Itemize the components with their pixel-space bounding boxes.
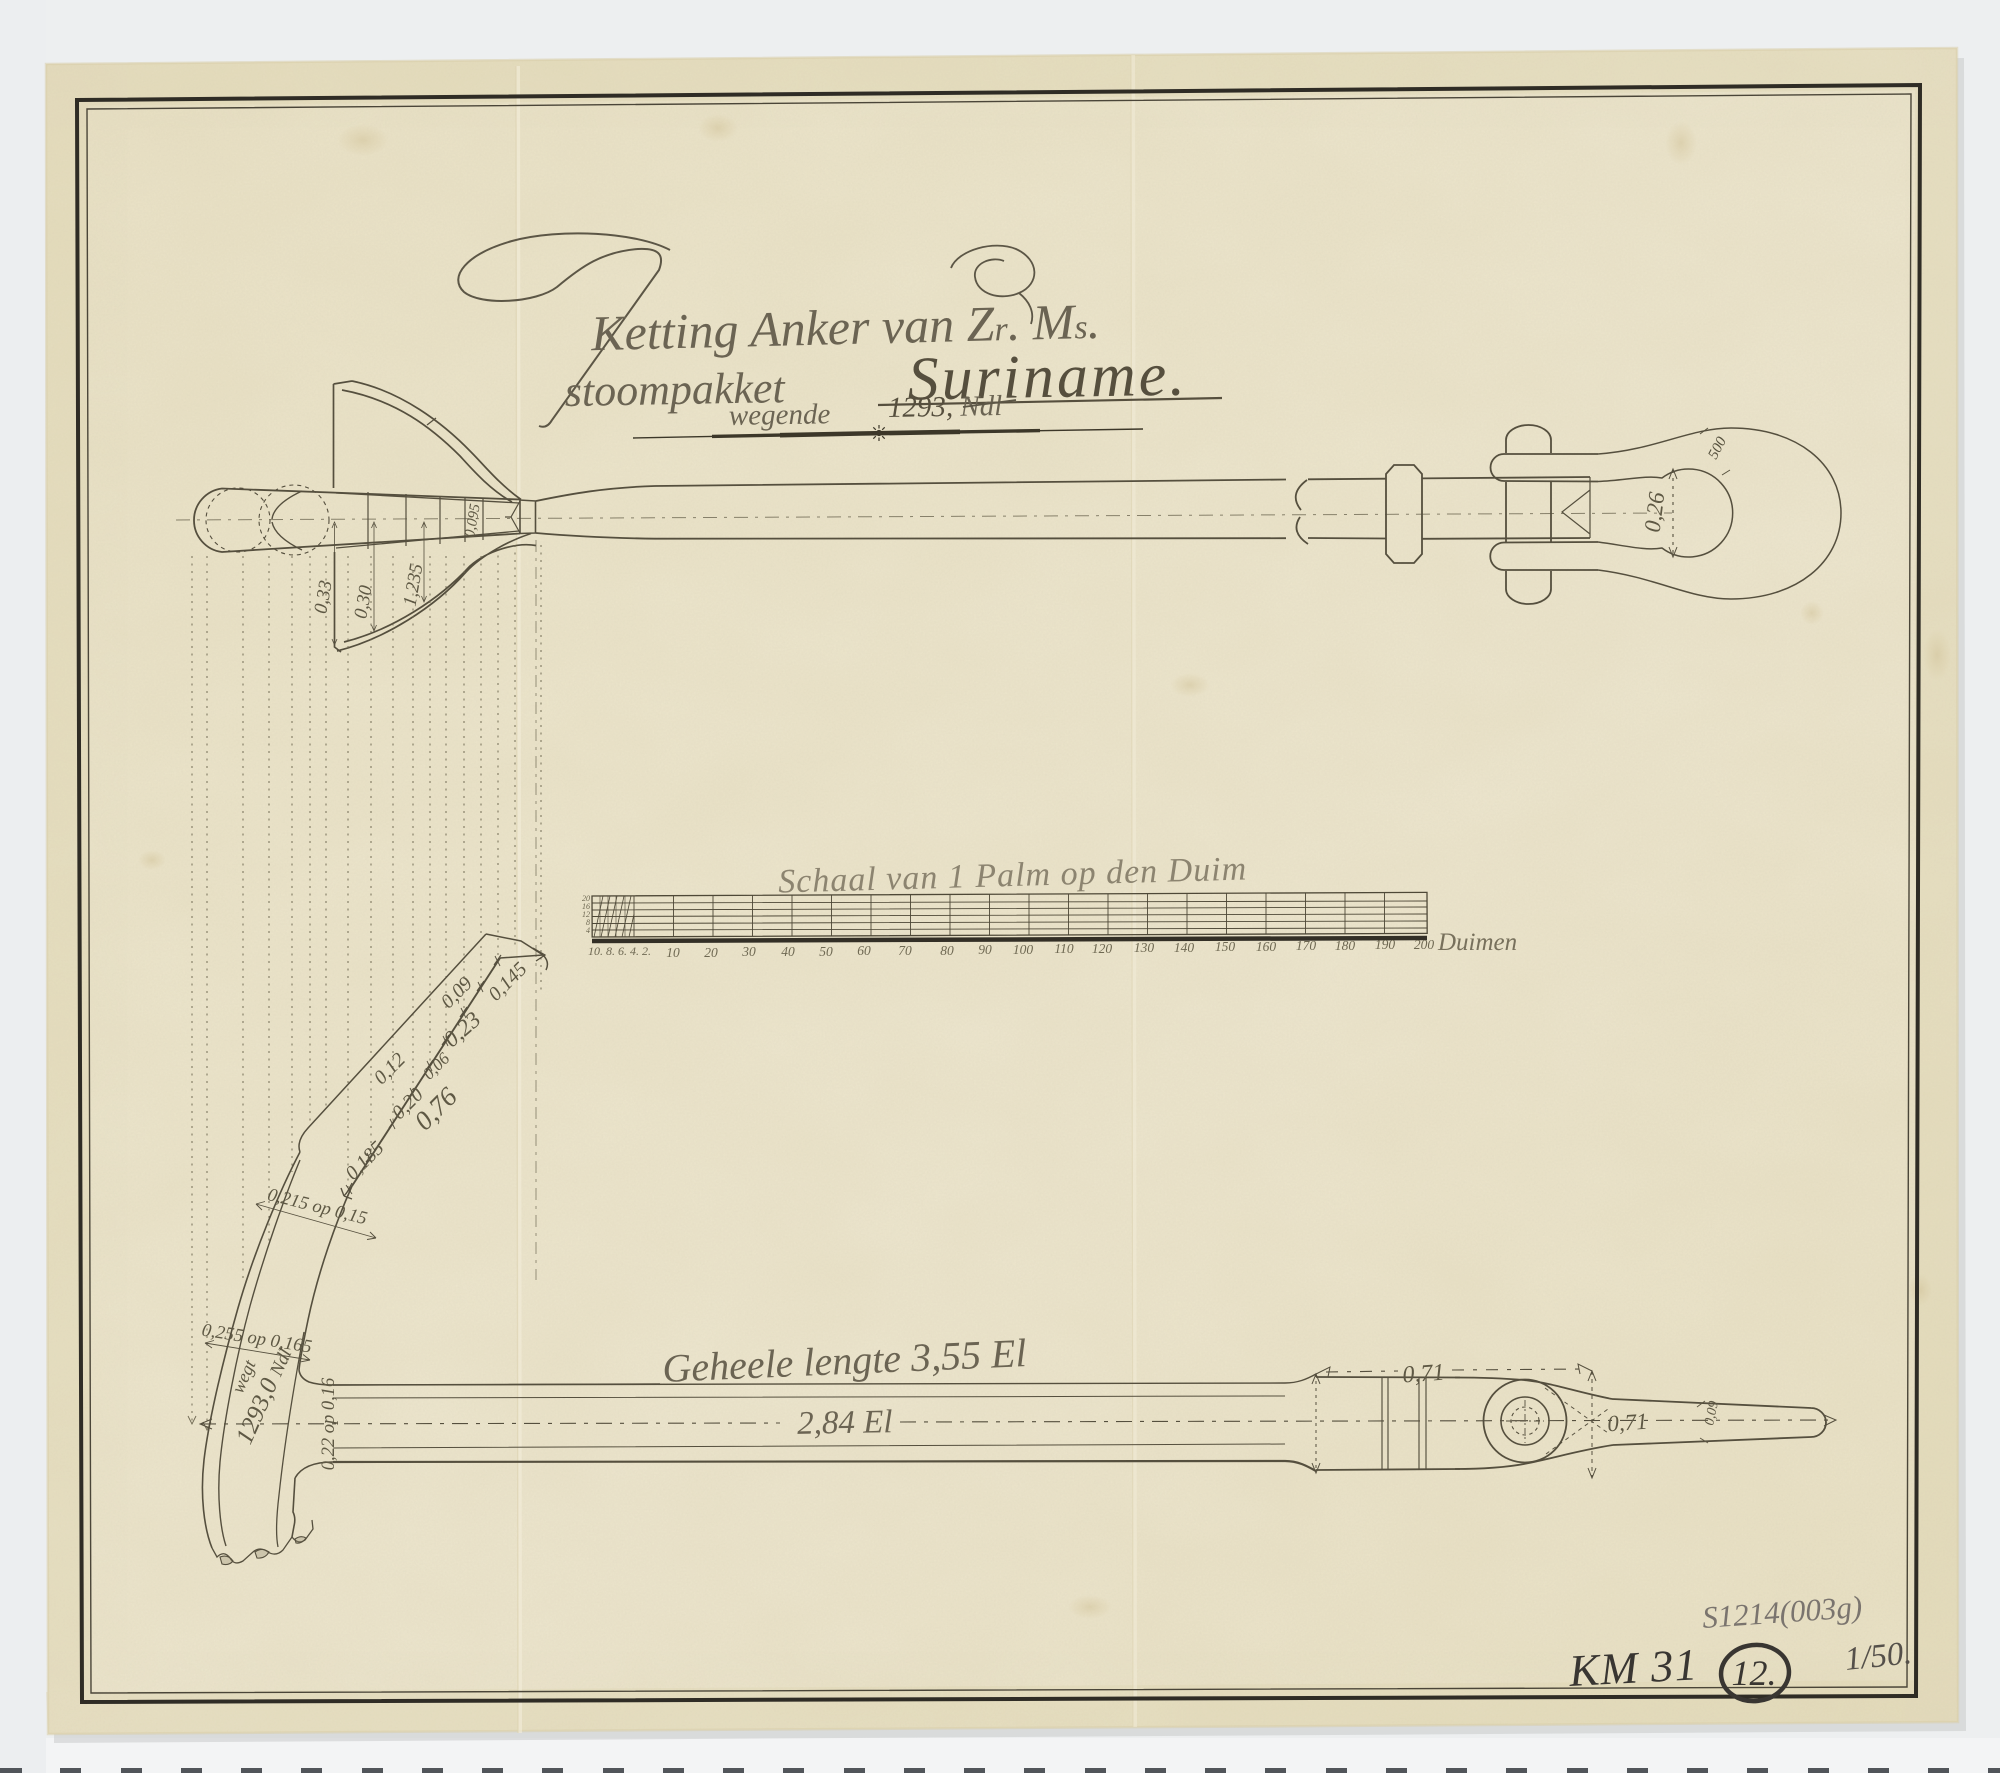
svg-text:80: 80 xyxy=(940,943,954,958)
svg-text:2,84 El: 2,84 El xyxy=(797,1404,893,1442)
svg-text:KM 31: KM 31 xyxy=(1567,1639,1699,1696)
svg-text:4: 4 xyxy=(586,926,590,935)
svg-text:20: 20 xyxy=(704,945,718,960)
svg-text:Duimen: Duimen xyxy=(1437,929,1517,956)
svg-text:0,26: 0,26 xyxy=(1640,490,1670,533)
svg-text:120: 120 xyxy=(1092,941,1113,956)
svg-text:110: 110 xyxy=(1054,941,1073,956)
svg-text:12.: 12. xyxy=(1732,1653,1777,1693)
svg-text:1/50.: 1/50. xyxy=(1843,1635,1913,1678)
svg-text:140: 140 xyxy=(1174,940,1195,955)
svg-text:90: 90 xyxy=(978,942,992,957)
svg-text:10. 8. 6. 4. 2.: 10. 8. 6. 4. 2. xyxy=(588,944,651,958)
svg-text:0,71: 0,71 xyxy=(1607,1409,1649,1437)
svg-text:1293, Ndl: 1293, Ndl xyxy=(888,390,1003,424)
svg-text:60: 60 xyxy=(857,943,871,958)
svg-text:150: 150 xyxy=(1215,939,1236,954)
svg-text:190: 190 xyxy=(1375,937,1396,952)
svg-text:130: 130 xyxy=(1134,940,1155,955)
svg-text:70: 70 xyxy=(898,943,912,958)
svg-text:40: 40 xyxy=(781,944,795,959)
svg-text:160: 160 xyxy=(1256,939,1277,954)
svg-text:200: 200 xyxy=(1414,937,1435,952)
svg-text:180: 180 xyxy=(1335,938,1356,953)
svg-text:170: 170 xyxy=(1296,938,1317,953)
svg-text:wegende: wegende xyxy=(729,398,831,432)
svg-text:10: 10 xyxy=(666,945,680,960)
svg-text:0,71: 0,71 xyxy=(1402,1360,1446,1389)
svg-text:30: 30 xyxy=(741,944,756,959)
svg-text:50: 50 xyxy=(819,944,833,959)
svg-text:100: 100 xyxy=(1013,942,1034,957)
